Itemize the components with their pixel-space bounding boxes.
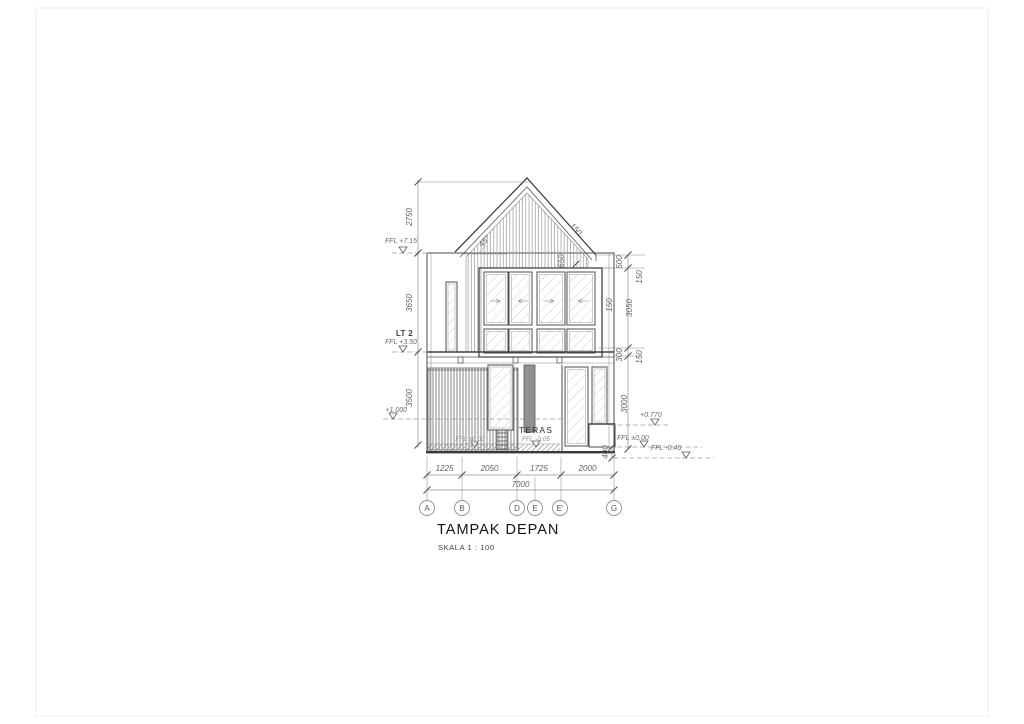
grid-bubbles	[420, 501, 622, 516]
level-yard: FFL -0.40	[651, 445, 681, 452]
panel-far-right	[592, 367, 607, 424]
dim-band-150: 150	[635, 350, 644, 364]
level-fence: +1.000	[385, 407, 407, 414]
roof-overhang-label: 650	[557, 254, 566, 268]
window-assembly-floor2	[479, 268, 602, 357]
dim-beam-300: 300	[615, 348, 624, 362]
grid-label-E-prime: E'	[557, 504, 564, 513]
grid-label-E: E	[532, 504, 537, 513]
base-line	[426, 451, 615, 453]
dim-cap-150: 150	[635, 270, 644, 284]
dim-bottom-3: 1725	[530, 464, 548, 473]
drawing-scale: SKALA 1 : 100	[438, 543, 495, 552]
window-narrow-left	[446, 282, 457, 352]
grid-label-G: G	[611, 504, 617, 513]
teras-tag: TERAS	[519, 425, 553, 435]
dim-base-step: 400	[601, 445, 610, 459]
drawing-sheet: 2750 FFL +7.15 3650 LT 2 FFL +3.50 3500 …	[0, 0, 1024, 724]
open-door-leaf	[524, 365, 535, 432]
dim-bottom-4: 2000	[578, 464, 597, 473]
floor2-tag: LT 2	[396, 329, 413, 338]
dim-wall-150: 150	[605, 298, 614, 312]
entry-door-panel	[488, 365, 513, 430]
grid-label-D: D	[514, 504, 520, 513]
dim-bottom-1: 1225	[436, 464, 454, 473]
ground-hatch	[428, 444, 560, 451]
level-teras: FFL -0.05	[522, 436, 550, 443]
dim-upper-wall: 3650	[405, 294, 414, 312]
dim-bottom-2: 2050	[480, 464, 499, 473]
grid-label-B: B	[459, 504, 464, 513]
window-ground-right	[565, 367, 588, 446]
dim-roof-height: 2750	[405, 208, 414, 227]
dim-upper-opening: 3050	[625, 299, 634, 317]
drawing-title: TAMPAK DEPAN	[437, 522, 559, 538]
dim-bottom-total: 7000	[512, 480, 530, 489]
level-eaves: FFL +7.15	[385, 238, 417, 245]
dim-parapet: 500	[615, 255, 624, 269]
dim-ground-opening: 3000	[620, 395, 629, 413]
paper-border	[36, 8, 988, 716]
planter-box	[589, 424, 615, 447]
dim-ground-wall: 3500	[405, 389, 414, 407]
elevation-drawing: 2750 FFL +7.15 3650 LT 2 FFL +3.50 3500 …	[0, 0, 1024, 724]
level-ground-hidden: FFL ±0.00	[455, 436, 485, 443]
level-floor2: FFL +3.50	[385, 339, 417, 346]
level-ground: FFL ±0.00	[617, 435, 649, 442]
grid-label-A: A	[424, 504, 430, 513]
level-planter: +0.770	[640, 412, 662, 419]
